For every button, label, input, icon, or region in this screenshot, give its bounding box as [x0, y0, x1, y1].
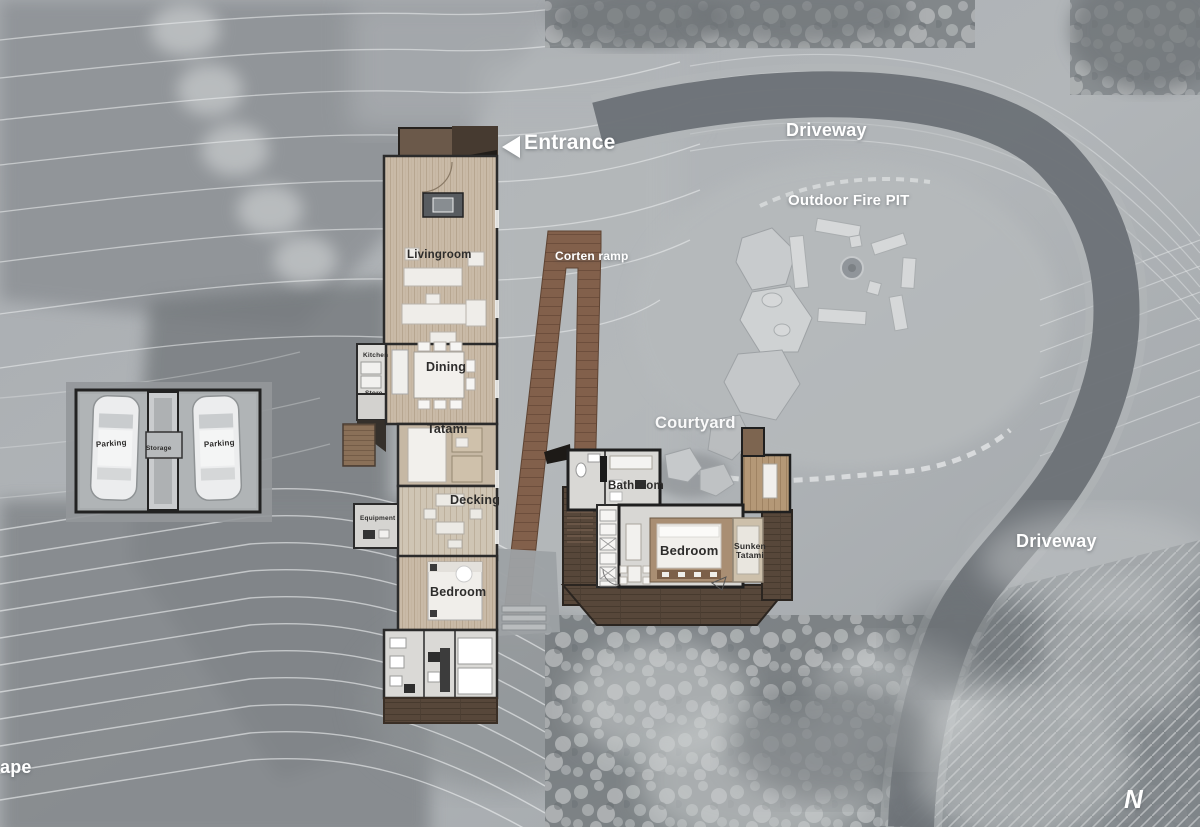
room-equipment: [354, 504, 398, 548]
bedroom-island: [626, 524, 641, 560]
dining-table: [414, 352, 464, 398]
fire-pit-bench: [901, 258, 916, 289]
kitchen-island: [392, 350, 408, 394]
car-right: [192, 395, 242, 501]
site-plan-canvas: Entrance Driveway Outdoor Fire PIT Corte…: [0, 0, 1200, 827]
car-left: [90, 395, 140, 501]
entrance-arrow-icon: [502, 136, 520, 158]
futon: [408, 428, 446, 482]
bathtub: [610, 456, 652, 469]
side-entry-steps: [343, 424, 375, 466]
toilet: [576, 463, 586, 477]
garage-building: [66, 382, 272, 522]
storage-platform: [146, 432, 182, 458]
vanity: [440, 648, 450, 692]
annex-deck-bottom: [563, 585, 790, 625]
deck-bottom: [384, 698, 497, 723]
annex-chimney-block: [742, 428, 764, 456]
fire-pit-bench: [818, 308, 867, 324]
annex-deck-right: [762, 510, 792, 600]
room-store: [357, 394, 386, 420]
site-plan-drawing: [0, 0, 1200, 827]
concrete-pad: [492, 548, 560, 636]
picnic-table: [502, 606, 546, 630]
